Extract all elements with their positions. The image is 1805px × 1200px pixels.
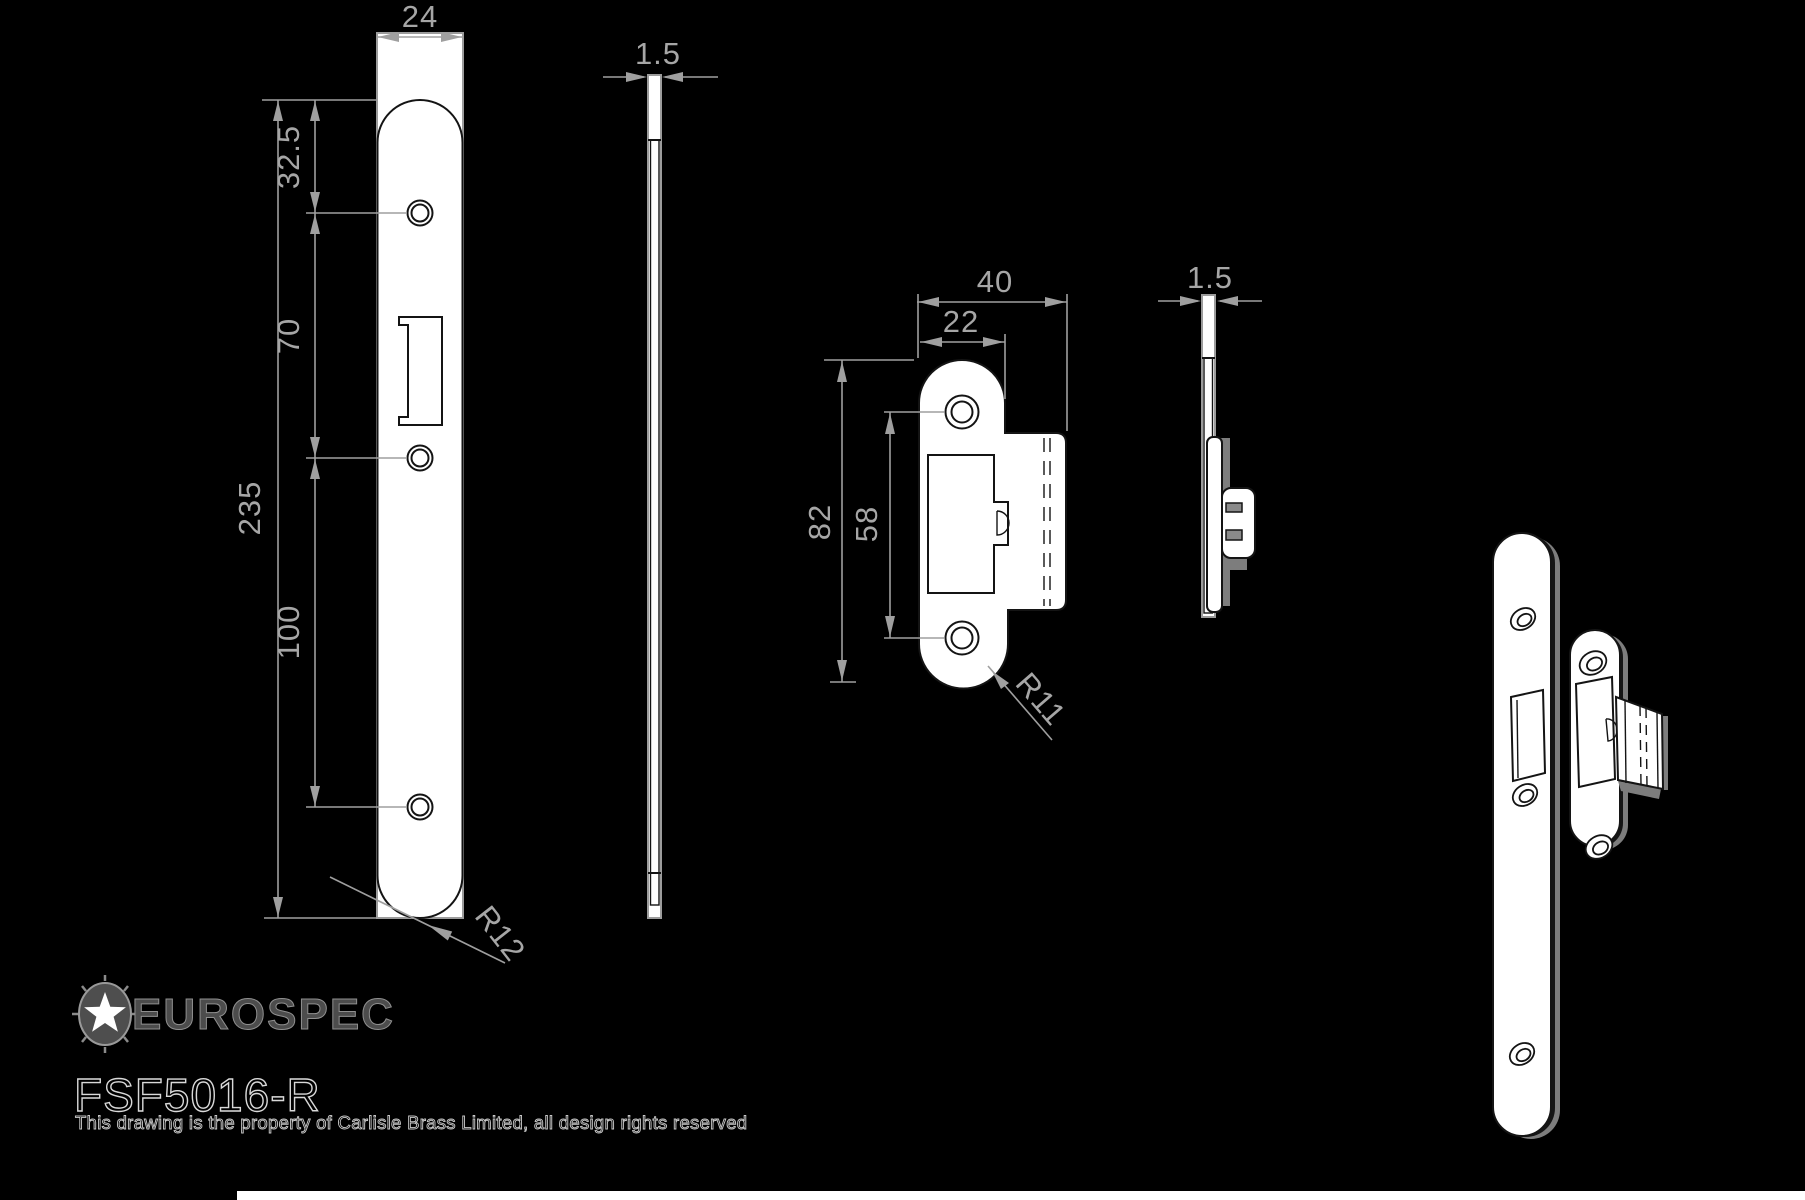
dim-label: 1.5 — [1187, 260, 1233, 295]
dim-label: 100 — [271, 605, 306, 660]
forend-edge-view: 1.5 — [603, 36, 718, 918]
dim-label: 235 — [232, 481, 267, 536]
dim-label: 40 — [977, 264, 1013, 299]
lip-edge-line — [1657, 713, 1658, 788]
copyright-disclaimer: This drawing is the property of Carlisle… — [75, 1112, 747, 1134]
dim-label: R12 — [468, 899, 532, 968]
dim-label: 1.5 — [635, 36, 681, 71]
forend-face-view: 24 32.5 70 100 235 R12 — [232, 0, 532, 968]
dim-label: R11 — [1009, 666, 1073, 732]
brand-logo — [72, 975, 138, 1053]
screw-hole — [408, 201, 433, 226]
bottom-white-bar — [237, 1191, 1805, 1200]
strike-edge-view: 1.5 — [1158, 260, 1262, 617]
strike-latch-cutout — [1576, 677, 1615, 787]
dim-label: 22 — [943, 304, 979, 339]
dim-label: 32.5 — [271, 125, 306, 189]
brand-name: EUROSPEC — [132, 990, 395, 1040]
cutout-thickness-line — [1517, 700, 1518, 778]
radius-callout: R11 — [988, 666, 1073, 740]
strike-lip-edge — [1222, 488, 1255, 558]
dim-label: 82 — [802, 504, 837, 540]
isometric-strike — [1570, 630, 1668, 864]
lip-fold-line — [1625, 700, 1626, 783]
screw-hole — [408, 446, 433, 471]
strike-face-view: 40 22 82 58 R11 — [802, 264, 1073, 740]
dim-label: 24 — [402, 0, 438, 34]
screw-hole — [408, 795, 433, 820]
screw-hole — [946, 396, 979, 429]
lip-slot — [1226, 503, 1242, 512]
isometric-forend — [1493, 533, 1560, 1139]
dim-label: 70 — [271, 318, 306, 354]
forend-latch-cutout — [1511, 690, 1545, 781]
lip-slot — [1226, 530, 1242, 540]
isometric-view — [1493, 533, 1668, 1139]
dim-label: 58 — [849, 506, 884, 542]
screw-hole — [946, 622, 979, 655]
strike-box-edge — [1207, 437, 1222, 612]
technical-drawing-canvas: 24 32.5 70 100 235 R12 — [0, 0, 1805, 1200]
